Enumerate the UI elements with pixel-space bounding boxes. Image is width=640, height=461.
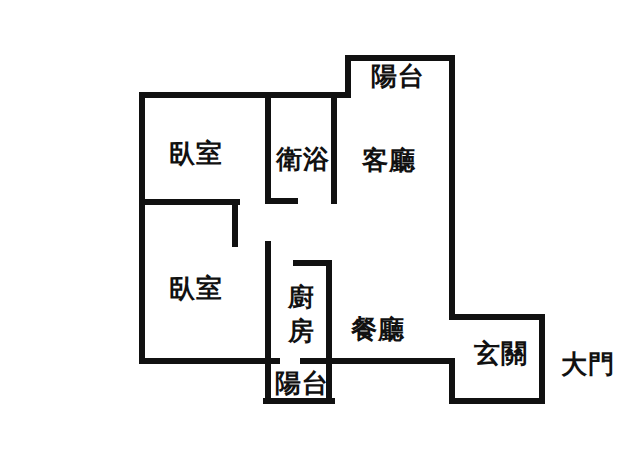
wall-bathroom-bottom bbox=[265, 198, 298, 204]
room-label-bedroom-2: 臥室 bbox=[169, 275, 223, 301]
room-label-balcony-top: 陽台 bbox=[371, 63, 425, 89]
wall-entry-right bbox=[539, 314, 545, 404]
wall-entry-bottom bbox=[449, 398, 545, 404]
wall-outer-right bbox=[449, 55, 455, 320]
floor-plan-canvas: 陽台 臥室 衛浴 客廳 臥室 廚房 餐廳 陽台 玄關 大門 bbox=[0, 0, 640, 461]
room-label-entryway: 玄關 bbox=[474, 340, 528, 366]
wall-bedroom-divider bbox=[139, 199, 240, 205]
room-label-bathroom: 衛浴 bbox=[276, 146, 330, 172]
wall-bedroom2-door-jamb bbox=[232, 199, 238, 247]
wall-dining-bottom bbox=[300, 358, 455, 364]
room-label-living-room: 客廳 bbox=[362, 147, 416, 173]
wall-outer-top bbox=[139, 92, 351, 98]
wall-outer-left bbox=[139, 92, 145, 364]
wall-entry-top bbox=[449, 314, 545, 320]
wall-balcony-top-left bbox=[345, 55, 351, 98]
wall-bedroom2-bottom bbox=[139, 358, 280, 364]
room-label-main-door: 大門 bbox=[561, 351, 615, 377]
wall-bathroom-right bbox=[331, 92, 337, 204]
room-label-bedroom-1: 臥室 bbox=[169, 140, 223, 166]
room-label-kitchen: 廚房 bbox=[287, 280, 315, 349]
wall-balcony-bottom-bottom bbox=[263, 398, 335, 404]
wall-kitchen-left bbox=[265, 241, 271, 404]
wall-entry-left bbox=[449, 358, 455, 404]
room-label-dining-room: 餐廳 bbox=[351, 316, 405, 342]
wall-bathroom-left bbox=[265, 92, 271, 204]
room-label-balcony-bottom: 陽台 bbox=[275, 370, 329, 396]
